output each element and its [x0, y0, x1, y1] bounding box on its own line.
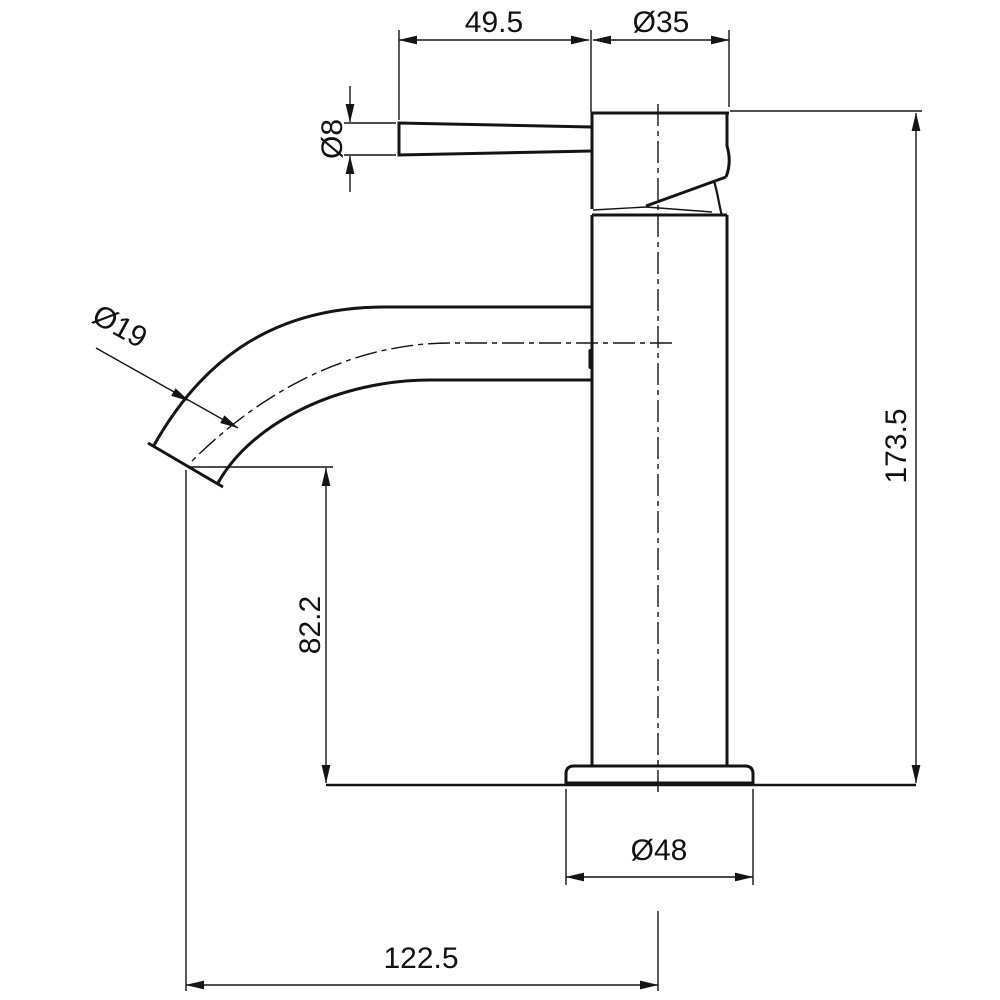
dimension-spout-tube-diameter: Ø19: [87, 299, 238, 428]
leader-line: [96, 348, 238, 428]
dim-label-spout-tube-diameter: Ø19: [87, 299, 153, 355]
dimension-lever-rod-diameter: Ø8: [316, 86, 396, 192]
spout-outer-edge: [153, 307, 592, 447]
centerlines: [189, 104, 672, 792]
dimension-spout-outlet-height: 82.2: [190, 467, 333, 783]
spout-centerline: [189, 343, 672, 464]
dim-label-lever-length: 49.5: [465, 6, 523, 39]
faucet-outline: [148, 113, 916, 785]
dim-label-spout-outlet-height: 82.2: [294, 596, 327, 654]
dimension-head-diameter: Ø35: [593, 6, 729, 107]
dim-label-overall-height: 173.5: [880, 408, 913, 483]
technical-drawing-canvas: 49.5 Ø35 Ø8 Ø19 173.5: [0, 0, 1000, 1000]
dimension-spout-reach: 122.5: [186, 470, 658, 991]
drawing-page: 49.5 Ø35 Ø8 Ø19 173.5: [0, 0, 1000, 1000]
dimension-overall-height: 173.5: [730, 111, 922, 783]
head-body-seam: [593, 207, 712, 212]
dim-label-spout-reach: 122.5: [383, 942, 458, 975]
dimension-lever-length: 49.5: [399, 6, 591, 120]
head-right-edge: [726, 113, 729, 177]
collar-right-edge: [714, 181, 722, 216]
dim-label-base-flange-diameter: Ø48: [631, 834, 688, 867]
lever-rod: [399, 123, 592, 155]
dim-label-head-diameter: Ø35: [633, 6, 690, 39]
dim-label-lever-rod-diameter: Ø8: [316, 119, 349, 159]
head-top-left: [592, 113, 729, 209]
dimension-base-flange-diameter: Ø48: [566, 789, 753, 885]
